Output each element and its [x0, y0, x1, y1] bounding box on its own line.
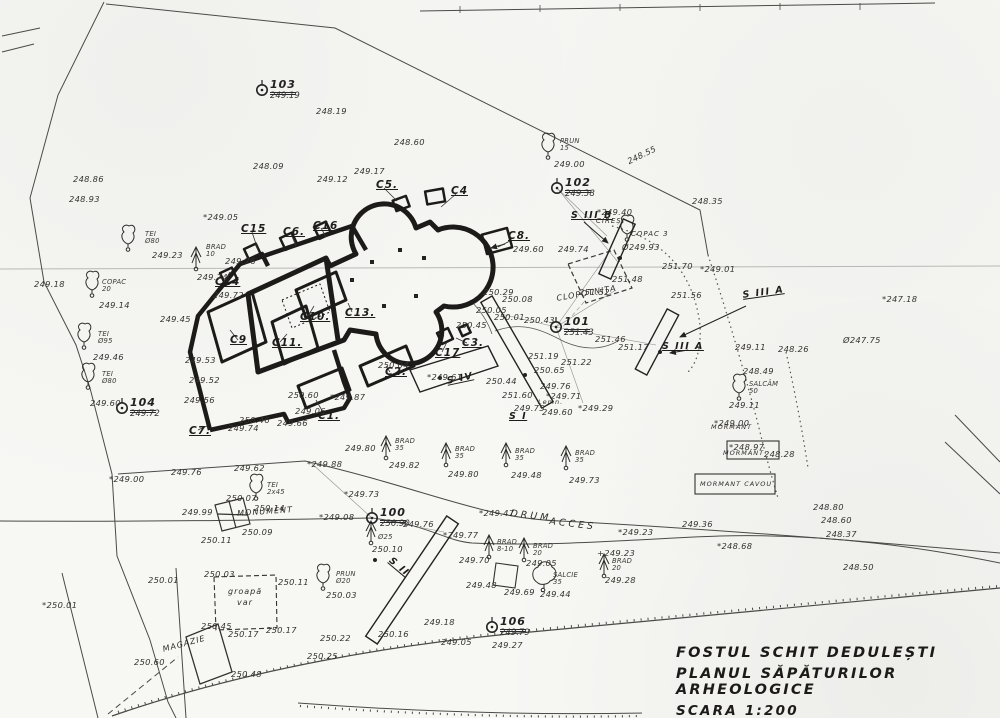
elevation-label: *249.87 [330, 393, 365, 401]
plan-subtitle: PLANUL SĂPĂTURILOR ARHEOLOGICE [676, 666, 1000, 698]
structure-label-C16: C16 [313, 221, 338, 232]
elevation-label: 250.17 [228, 630, 259, 638]
station-102: 102249.38 [565, 173, 595, 199]
elevation-label: 249.76 [171, 468, 202, 476]
trench-label: S I [509, 412, 527, 422]
tree-label: SALCIE35 [553, 572, 578, 586]
elevation-label: 249.60 [542, 408, 573, 416]
elevation-label: 249.48 [466, 581, 497, 589]
elevation-label: 250.11 [278, 578, 309, 586]
tree-icon [561, 446, 571, 470]
boundary-lines [2, 2, 1000, 718]
map-feature-label: CIREȘ [596, 218, 622, 225]
tree-elevation-label: 249.05 [526, 559, 557, 567]
fold-line [0, 266, 1000, 269]
tree-label: PRUNØ20 [336, 571, 356, 585]
tree-label: TEIØ80 [102, 371, 117, 385]
tree-elevation-label: 249.44 [540, 590, 571, 598]
tree-label: BRAD35 [515, 448, 535, 462]
trench-label: S III A [662, 342, 704, 352]
tree-label: BRAD8-10 [497, 539, 517, 553]
station-elevation: 249.38 [565, 190, 595, 199]
elevation-label: 249.45 [160, 315, 191, 323]
map-feature-label: groapă [228, 588, 262, 596]
elevation-label: 248.86 [73, 175, 104, 183]
elevation-label: Ø249.93 [622, 243, 660, 251]
elevation-label: 249.36 [682, 520, 713, 528]
elevation-label: 250.43 [524, 316, 555, 324]
tree-label: BRAD20 [533, 543, 553, 557]
tree-elevation-label: 250.03 [326, 591, 357, 599]
tree-elevation-label: 249.48 [511, 471, 542, 479]
map-feature-label: MORMANT CAVOU [700, 481, 772, 488]
elevation-label: 250.65 [534, 366, 565, 374]
elevation-label: *249.05 [203, 213, 238, 221]
elevation-label: 249.12 [317, 175, 348, 183]
station-100: 100250.90 [380, 503, 410, 529]
elevation-label: *249.23 [618, 528, 653, 536]
tree-elevation-label: 249.73 [569, 476, 600, 484]
tree-elevation-label: 249.23 [152, 251, 183, 259]
elevation-label: 251.70 [662, 262, 693, 270]
elevation-label: *249.00 [109, 475, 144, 483]
title-block: FOSTUL SCHIT DEDULEȘTI PLANUL SĂPĂTURILO… [676, 645, 1000, 718]
station-elevation: 249.79 [500, 629, 530, 638]
elevation-label: 249.74 [558, 245, 589, 253]
structure-label-C17: C17 [435, 348, 460, 359]
elevation-label: 250.22 [320, 634, 351, 642]
tree-label: BRAD20 [612, 558, 632, 572]
tree-label: BRAD35 [395, 438, 415, 452]
tree-label: TEIØ80 [145, 231, 160, 245]
elevation-label: 251.56 [671, 291, 702, 299]
elevation-label: 248.37 [826, 530, 857, 538]
elevation-label: 250.44 [486, 377, 517, 385]
elevation-label: *249.77 [443, 531, 478, 539]
elevation-label: 251.17 [618, 343, 649, 351]
elevation-label: 249.17 [354, 167, 385, 175]
elevation-label: 250.60 [134, 658, 165, 666]
tree-elevation-label: 249.14 [99, 301, 130, 309]
elevation-label: 248.35 [692, 197, 723, 205]
station-106: 106249.79 [500, 612, 530, 638]
elevation-label: 249.76 [225, 257, 256, 265]
elevation-label: 248.50 [843, 563, 874, 571]
elevation-label: 248.09 [253, 162, 284, 170]
elevation-label: *249.47 [479, 509, 514, 517]
map-feature-label: MORMANT [711, 424, 752, 431]
structure-label-C9: C9 [230, 335, 247, 346]
elevation-label: *249.88 [307, 460, 342, 468]
tree-icon [82, 363, 95, 389]
structure-label-C8: C8. [508, 231, 530, 242]
station-104: 104249.72 [130, 393, 160, 419]
tree-icon [78, 323, 91, 349]
elevation-label: 251.19 [528, 352, 559, 360]
tree-icon [441, 443, 451, 467]
structure-label-C10: C10. [300, 312, 330, 323]
tree-elevation-label: 249.60 [90, 399, 121, 407]
elevation-label: *247.18 [882, 295, 917, 303]
elevation-label: 248.19 [316, 107, 347, 115]
elevation-label: 251.48 [612, 275, 643, 283]
elevation-label: 249.62 [234, 464, 265, 472]
elevation-label: 250.17 [266, 626, 297, 634]
station-103: 103249.19 [270, 75, 300, 101]
plan-drawing [0, 0, 1000, 718]
elevation-label: *249.01 [700, 265, 735, 273]
elevation-label: *249.29 [578, 404, 613, 412]
elevation-label: 249.11 [729, 401, 760, 409]
tree-elevation-label: 249.00 [554, 160, 585, 168]
elevation-label: 250.10 [372, 545, 403, 553]
elevation-label: 249.69 [504, 588, 535, 596]
tree-label: TEI2x45 [267, 482, 285, 496]
station-elevation: 250.90 [380, 520, 410, 529]
elevation-label: 249.27 [492, 641, 523, 649]
elevation-label: 248.80 [813, 503, 844, 511]
map-feature-label: COPAC 3 [631, 231, 669, 238]
tree-icon [122, 225, 135, 251]
elevation-label: 251.22 [561, 358, 592, 366]
elevation-label: 249.76 [540, 382, 571, 390]
tree-icon [381, 436, 391, 460]
elevation-label: 250.01 [494, 313, 525, 321]
tree-elevation-label: 249.82 [389, 461, 420, 469]
elevation-label: 249.53 [185, 356, 216, 364]
tree-elevation-label: 249.80 [448, 470, 479, 478]
elevation-label: 249.99 [182, 508, 213, 516]
map-feature-label: MORMANT [723, 450, 764, 457]
plan-scale: SCARA 1:200 [676, 703, 1000, 718]
elevation-label: 248.60 [394, 138, 425, 146]
elevation-label: 250.11 [201, 536, 232, 544]
tree-icon [501, 443, 511, 467]
elevation-label: *250.01 [42, 601, 77, 609]
elevation-label: 249.05 [441, 638, 472, 646]
station-elevation: 249.19 [270, 92, 300, 101]
elevation-label: 249.60 [513, 245, 544, 253]
tree-label: COPAC20 [102, 279, 126, 293]
station-symbols [117, 80, 562, 632]
elevation-label: 248.28 [764, 450, 795, 458]
elevation-label: *249.08 [319, 513, 354, 521]
tree-label: PRUN15 [560, 138, 580, 152]
elevation-label: 249.18 [424, 618, 455, 626]
elevation-label: 248.93 [69, 195, 100, 203]
map-feature-label: var [237, 599, 253, 607]
elevation-label: 248.60 [821, 516, 852, 524]
elevation-label: 250.09 [242, 528, 273, 536]
elevation-label: 248.49 [743, 367, 774, 375]
elevation-label: 251.60 [502, 391, 533, 399]
elevation-label: 250.60 [288, 391, 319, 399]
elevation-label: 249.66 [277, 419, 308, 427]
tree-elevation-label: 249.74 [197, 273, 228, 281]
elevation-label: *249.73 [344, 490, 379, 498]
elevation-label: 250.45 [456, 321, 487, 329]
archaeological-site-plan: *249.05249.76249.72248.86248.93249.18248… [0, 0, 1000, 718]
structure-label-C2: C2. [385, 367, 407, 378]
tree-icon [733, 374, 746, 400]
tree-elevation-label: 249.28 [605, 576, 636, 584]
tree-icon [317, 564, 330, 590]
tree-icon [366, 521, 376, 545]
elevation-label: 250.08 [502, 295, 533, 303]
tree-label: SALCÂM50 [749, 381, 778, 395]
structure-label-C6: C6. [283, 227, 305, 238]
structure-label-C1: C1. [318, 411, 340, 422]
station-elevation: 249.72 [130, 410, 160, 419]
tree-label: TEIØ95 [98, 331, 113, 345]
tree-elevation-label: 249.46 [93, 353, 124, 361]
station-elevation: 251.43 [564, 329, 594, 338]
elevation-label: 248.26 [778, 345, 809, 353]
elevation-label: 249.72 [213, 291, 244, 299]
tree-label: BRAD35 [575, 450, 595, 464]
elevation-label: 250.48 [231, 670, 262, 678]
structure-label-C4: C4 [451, 186, 468, 197]
elevation-label: 250.01 [148, 576, 179, 584]
elevation-label: 250.16 [378, 630, 409, 638]
elevation-label: 249.80 [345, 444, 376, 452]
plan-title: FOSTUL SCHIT DEDULEȘTI [676, 645, 1000, 661]
tree-icon [86, 271, 99, 297]
tree-icon [191, 247, 201, 271]
tree-elevation-label: 249.70 [459, 556, 490, 564]
structure-label-C13: C13. [345, 308, 375, 319]
structure-label-C7: C7. [189, 426, 211, 437]
structure-label-C5: C5. [376, 180, 398, 191]
elevation-label: *248.68 [717, 542, 752, 550]
elevation-label: 250.25 [307, 652, 338, 660]
map-feature-label: Lemn. [538, 399, 563, 406]
tree-label: Ø25 [378, 534, 393, 541]
elevation-label: 250.07 [226, 494, 257, 502]
elevation-label: Ø247.75 [843, 336, 881, 344]
tree-label: BRAD35 [455, 446, 475, 460]
elevation-label: 250.03 [204, 570, 235, 578]
elevation-label: 249.52 [189, 376, 220, 384]
structure-label-C15: C15 [241, 224, 266, 235]
tree-label: BRAD10 [206, 244, 226, 258]
elevation-label: 249.18 [34, 280, 65, 288]
elevation-label: 249.74 [228, 424, 259, 432]
station-101: 101251.43 [564, 312, 594, 338]
structure-label-C3: C3. [462, 338, 484, 349]
structure-label-C11: C11. [272, 338, 302, 349]
elevation-label: 249.56 [184, 396, 215, 404]
elevation-label: 249.11 [735, 343, 766, 351]
